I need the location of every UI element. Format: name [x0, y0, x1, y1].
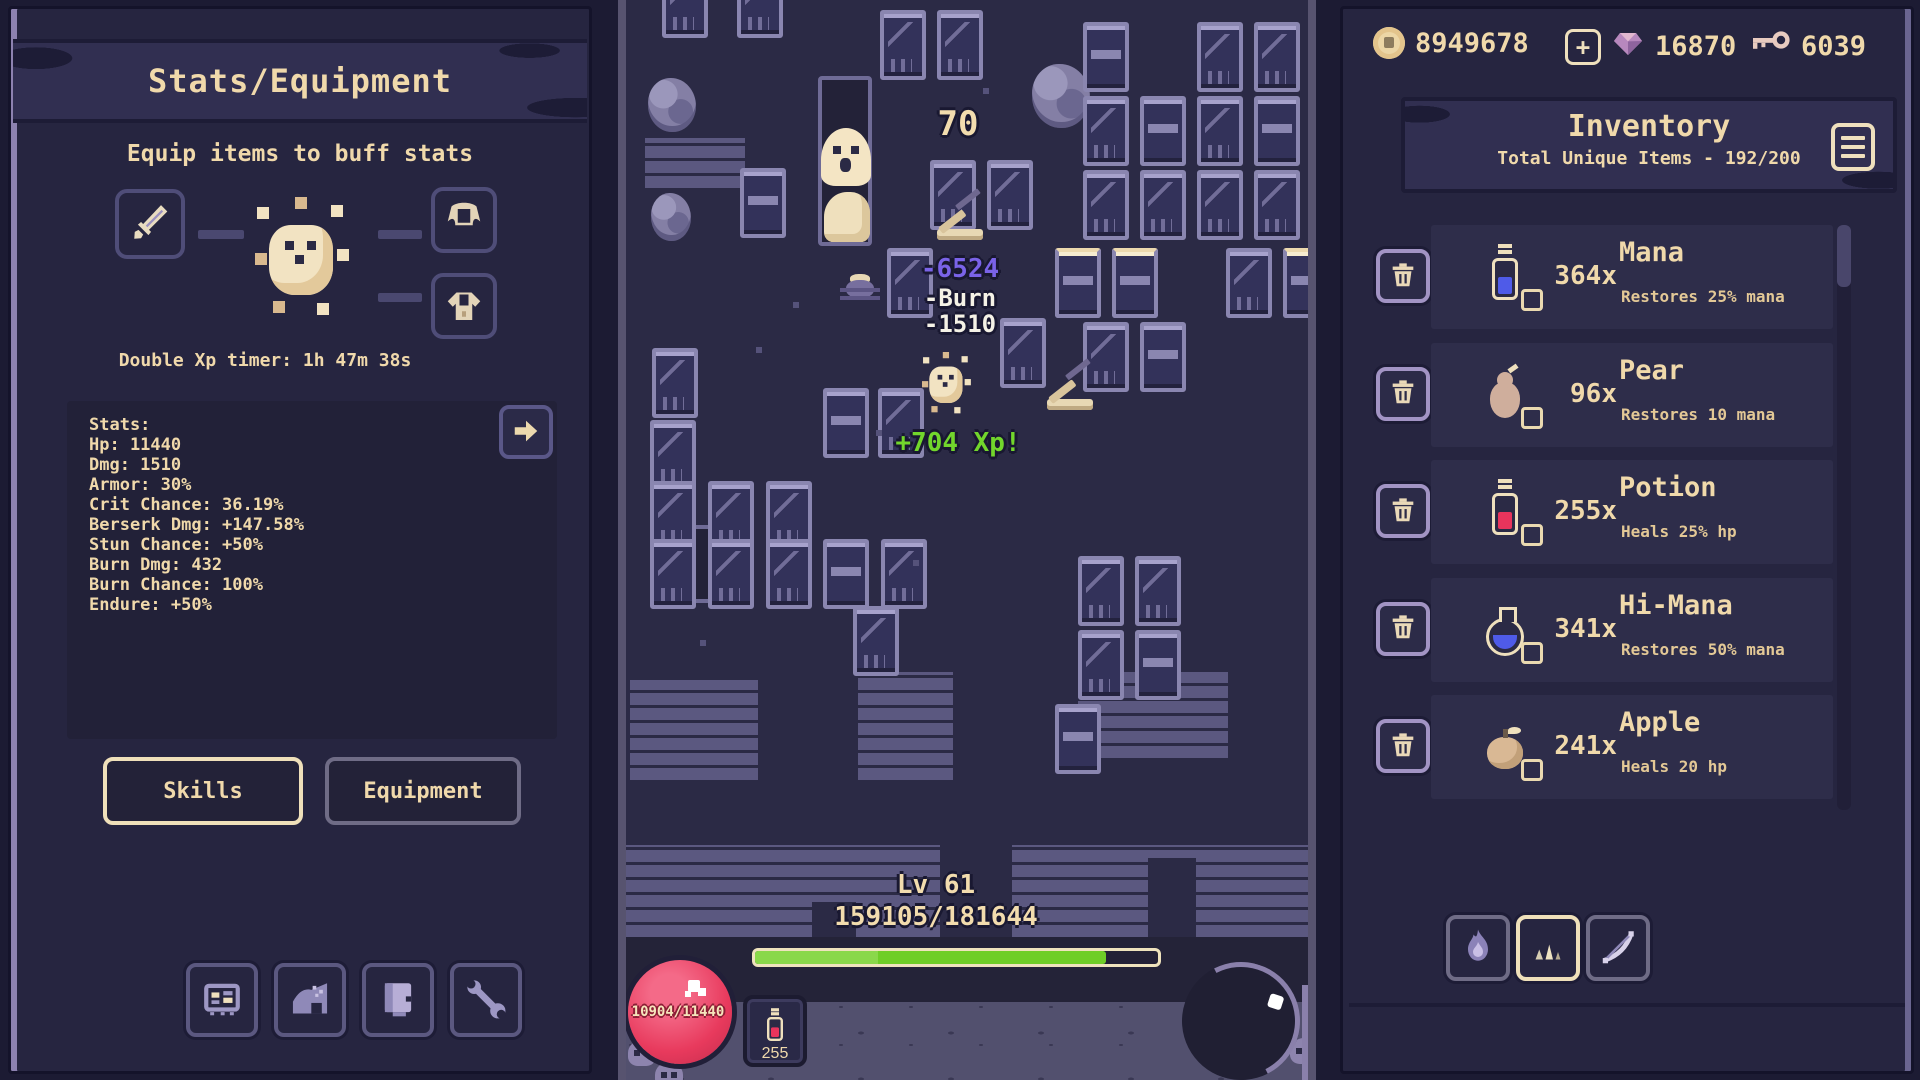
- crate-tile: [708, 539, 754, 609]
- inventory-row: 364x Mana Restores 25% mana: [1343, 225, 1917, 329]
- item-checkbox[interactable]: [1521, 289, 1543, 311]
- stats-box: Stats:Hp: 11440Dmg: 1510Armor: 30%Crit C…: [67, 401, 557, 739]
- stats-panel-subtitle: Equip items to buff stats: [11, 141, 589, 167]
- crate-tile: [650, 420, 696, 490]
- crate-tile: [737, 0, 783, 38]
- inventory-subtitle: Total Unique Items - 192/200: [1405, 148, 1893, 169]
- inventory-header: Inventory Total Unique Items - 192/200: [1401, 97, 1897, 193]
- crate-tile: [740, 168, 786, 238]
- key-currency: 6039: [1751, 27, 1866, 66]
- panel-divider: [1349, 1003, 1905, 1007]
- inventory-item[interactable]: 341x Hi-Mana Restores 50% mana: [1431, 578, 1833, 682]
- catapult-sprite: [1045, 368, 1095, 410]
- character-sprite: [255, 197, 351, 323]
- crate-tile: [1140, 96, 1186, 166]
- crate-tile: [1078, 630, 1124, 700]
- item-name: Apple: [1619, 707, 1700, 738]
- inventory-row: 241x Apple Heals 20 hp: [1343, 695, 1917, 799]
- crate-tile: [1000, 318, 1046, 388]
- viewport-frame-line: [618, 0, 626, 1080]
- arrow-right-icon: [511, 416, 541, 449]
- crate-tile: [652, 348, 698, 418]
- item-name: Mana: [1619, 237, 1684, 268]
- crate-tile: [880, 10, 926, 80]
- weapon-slot[interactable]: [115, 189, 185, 259]
- game-viewport: 70-6524-Burn-1510+704 Xp! Lv 61 159105/1…: [626, 0, 1308, 1080]
- quick-potion-button[interactable]: 255: [743, 995, 807, 1067]
- flame-filter-button[interactable]: [1446, 915, 1510, 981]
- sword-icon: [129, 202, 171, 247]
- item-checkbox[interactable]: [1521, 407, 1543, 429]
- gem-icon: [1611, 27, 1645, 66]
- item-count: 341x: [1543, 614, 1617, 644]
- damage-text: -1510: [924, 310, 996, 338]
- spider-enemy: [840, 268, 880, 304]
- inventory-row: 96x Pear Restores 10 mana: [1343, 343, 1917, 447]
- mana-potion-icon: [1492, 258, 1518, 300]
- inventory-scrollbar-thumb[interactable]: [1837, 225, 1851, 287]
- trash-icon: [1388, 377, 1418, 410]
- settings-button[interactable]: [450, 963, 522, 1037]
- item-description: Restores 10 mana: [1621, 405, 1775, 424]
- crate-tile: [1254, 96, 1300, 166]
- inventory-item[interactable]: 241x Apple Heals 20 hp: [1431, 695, 1833, 799]
- stat-line: Armor: 30%: [89, 475, 304, 495]
- stats-panel: Stats/Equipment Equip items to buff stat…: [8, 6, 592, 1074]
- boulder: [648, 78, 696, 132]
- player-sprite: [922, 352, 972, 418]
- crate-tile: [1254, 22, 1300, 92]
- cave-button[interactable]: [274, 963, 346, 1037]
- spikes-filter-button[interactable]: [1516, 915, 1580, 981]
- xp-progress-text: 159105/181644: [834, 902, 1038, 932]
- inventory-row: 255x Potion Heals 25% hp: [1343, 460, 1917, 564]
- stat-line: Burn Chance: 100%: [89, 575, 304, 595]
- hi-mana-icon: [1486, 618, 1524, 656]
- crate-tile: [937, 10, 983, 80]
- crate-tile: [766, 539, 812, 609]
- item-description: Restores 25% mana: [1621, 287, 1785, 306]
- potion-count: 255: [762, 1045, 789, 1063]
- stats-next-page-button[interactable]: [499, 405, 553, 459]
- catapult-sprite: [935, 198, 985, 240]
- inventory-item[interactable]: 96x Pear Restores 10 mana: [1431, 343, 1833, 447]
- crate-tile: [1226, 248, 1272, 318]
- pear-icon: [1490, 382, 1520, 418]
- damage-text: -Burn: [924, 284, 996, 312]
- debris-dot: [793, 302, 799, 308]
- item-description: Restores 50% mana: [1621, 640, 1785, 659]
- inventory-item[interactable]: 255x Potion Heals 25% hp: [1431, 460, 1833, 564]
- trash-icon: [1388, 495, 1418, 528]
- discard-item-button[interactable]: [1376, 249, 1430, 303]
- health-potion-icon: [767, 1017, 783, 1041]
- cape-icon: [444, 199, 484, 242]
- stat-line: Burn Dmg: 432: [89, 555, 304, 575]
- stat-line: Berserk Dmg: +147.58%: [89, 515, 304, 535]
- stats-board-icon: [201, 978, 243, 1023]
- trash-icon: [1388, 612, 1418, 645]
- apple-icon: [1487, 737, 1523, 769]
- key-icon: [1751, 27, 1791, 66]
- item-checkbox[interactable]: [1521, 524, 1543, 546]
- coin-currency: 8949678: [1373, 27, 1529, 59]
- item-name: Potion: [1619, 472, 1717, 503]
- debris-dot: [700, 640, 706, 646]
- wrench-icon: [465, 978, 507, 1023]
- slot-connector: [198, 230, 244, 239]
- boulder: [651, 193, 691, 241]
- key-value: 6039: [1801, 31, 1866, 62]
- level-label: Lv 61: [897, 870, 975, 900]
- crate-tile: [1055, 704, 1101, 774]
- health-potion-icon: [1492, 493, 1518, 535]
- xp-bar-fill: [755, 951, 1106, 964]
- stat-line: Stats:: [89, 415, 304, 435]
- debris-dot: [913, 560, 919, 566]
- gem-value: 16870: [1655, 31, 1736, 62]
- journal-button[interactable]: [362, 963, 434, 1037]
- crate-tile: [1283, 248, 1308, 318]
- gem-currency: + 16870: [1565, 27, 1736, 66]
- crate-tile: [987, 160, 1033, 230]
- xp-bar: [752, 948, 1161, 967]
- crate-tile: [1140, 322, 1186, 392]
- brick-wall: [858, 672, 953, 780]
- crate-tile: [1135, 630, 1181, 700]
- trash-icon: [1388, 260, 1418, 293]
- stats-board-button[interactable]: [186, 963, 258, 1037]
- crate-tile: [1112, 248, 1158, 318]
- cave-icon: [289, 978, 331, 1023]
- bow-filter-button[interactable]: [1586, 915, 1650, 981]
- crate-tile: [1197, 96, 1243, 166]
- crate-tile: [650, 539, 696, 609]
- ghost-enemy: [821, 128, 871, 186]
- hp-text: 10904/11440: [628, 1004, 728, 1020]
- discard-item-button[interactable]: [1376, 602, 1430, 656]
- damage-text: 70: [938, 104, 979, 144]
- game-screen: Stats/Equipment Equip items to buff stat…: [0, 0, 1920, 1080]
- viewport-frame-line: [1308, 0, 1316, 1080]
- item-count: 241x: [1543, 731, 1617, 761]
- sand-pile: [824, 192, 870, 242]
- crate-tile: [823, 388, 869, 458]
- armor-icon: [444, 285, 484, 328]
- damage-text: +704 Xp!: [895, 428, 1020, 458]
- trash-icon: [1388, 730, 1418, 763]
- crate-tile: [1197, 170, 1243, 240]
- discard-item-button[interactable]: [1376, 484, 1430, 538]
- crate-tile: [1055, 248, 1101, 318]
- crate-tile: [881, 539, 927, 609]
- discard-item-button[interactable]: [1376, 367, 1430, 421]
- item-description: Heals 20 hp: [1621, 757, 1727, 776]
- brick-wall: [645, 138, 745, 188]
- crate-tile: [1078, 556, 1124, 626]
- discard-item-button[interactable]: [1376, 719, 1430, 773]
- stats-panel-header: Stats/Equipment: [13, 39, 587, 123]
- skills-tab[interactable]: Skills: [103, 757, 303, 825]
- coin-icon: [1373, 27, 1405, 59]
- stat-line: Dmg: 1510: [89, 455, 304, 475]
- inventory-menu-button[interactable]: [1831, 123, 1875, 171]
- item-checkbox[interactable]: [1521, 642, 1543, 664]
- journal-icon: [377, 978, 419, 1023]
- crate-tile: [823, 539, 869, 609]
- crate-tile: [662, 0, 708, 38]
- boulder: [1032, 64, 1090, 128]
- stat-line: Endure: +50%: [89, 595, 304, 615]
- inventory-scrollbar: [1837, 225, 1851, 810]
- hp-orb: 10904/11440: [628, 960, 732, 1064]
- stat-line: Crit Chance: 36.19%: [89, 495, 304, 515]
- armor-slot[interactable]: [431, 273, 497, 339]
- crate-tile: [1083, 96, 1129, 166]
- crate-tile: [853, 606, 899, 676]
- stat-line: Stun Chance: +50%: [89, 535, 304, 555]
- equipment-tab[interactable]: Equipment: [325, 757, 521, 825]
- item-name: Hi-Mana: [1619, 590, 1733, 621]
- flame-icon: [1458, 925, 1498, 972]
- debris-dot: [756, 347, 762, 353]
- slot-connector: [378, 293, 422, 302]
- pillar-decoration: [1302, 985, 1308, 1080]
- stat-line: Hp: 11440: [89, 435, 304, 455]
- item-count: 255x: [1543, 496, 1617, 526]
- inventory-panel: 8949678 + 16870 6039: [1340, 6, 1914, 1074]
- item-checkbox[interactable]: [1521, 759, 1543, 781]
- item-description: Heals 25% hp: [1621, 522, 1737, 541]
- double-xp-timer: Double Xp timer: 1h 47m 38s: [11, 350, 519, 371]
- debris-dot: [983, 88, 989, 94]
- wall-gap: [1148, 858, 1196, 937]
- crate-tile: [1083, 22, 1129, 92]
- stats-list: Stats:Hp: 11440Dmg: 1510Armor: 30%Crit C…: [89, 415, 304, 615]
- crate-tile: [1254, 170, 1300, 240]
- crate-tile: [1197, 22, 1243, 92]
- crate-tile: [1140, 170, 1186, 240]
- stats-panel-title: Stats/Equipment: [148, 62, 452, 100]
- item-count: 364x: [1543, 261, 1617, 291]
- inventory-title: Inventory: [1405, 109, 1893, 144]
- slot-connector: [378, 230, 422, 239]
- spikes-icon: [1528, 927, 1568, 970]
- cape-slot[interactable]: [431, 187, 497, 253]
- item-name: Pear: [1619, 355, 1684, 386]
- inventory-item[interactable]: 364x Mana Restores 25% mana: [1431, 225, 1833, 329]
- buy-gems-button[interactable]: +: [1565, 29, 1601, 65]
- bow-icon: [1597, 926, 1639, 971]
- inventory-row: 341x Hi-Mana Restores 50% mana: [1343, 578, 1917, 682]
- damage-text: -6524: [921, 254, 999, 284]
- crate-tile: [1135, 556, 1181, 626]
- crate-tile: [1083, 170, 1129, 240]
- brick-wall: [630, 680, 758, 780]
- debris-dot: [876, 430, 882, 436]
- coin-value: 8949678: [1415, 28, 1529, 59]
- item-count: 96x: [1543, 379, 1617, 409]
